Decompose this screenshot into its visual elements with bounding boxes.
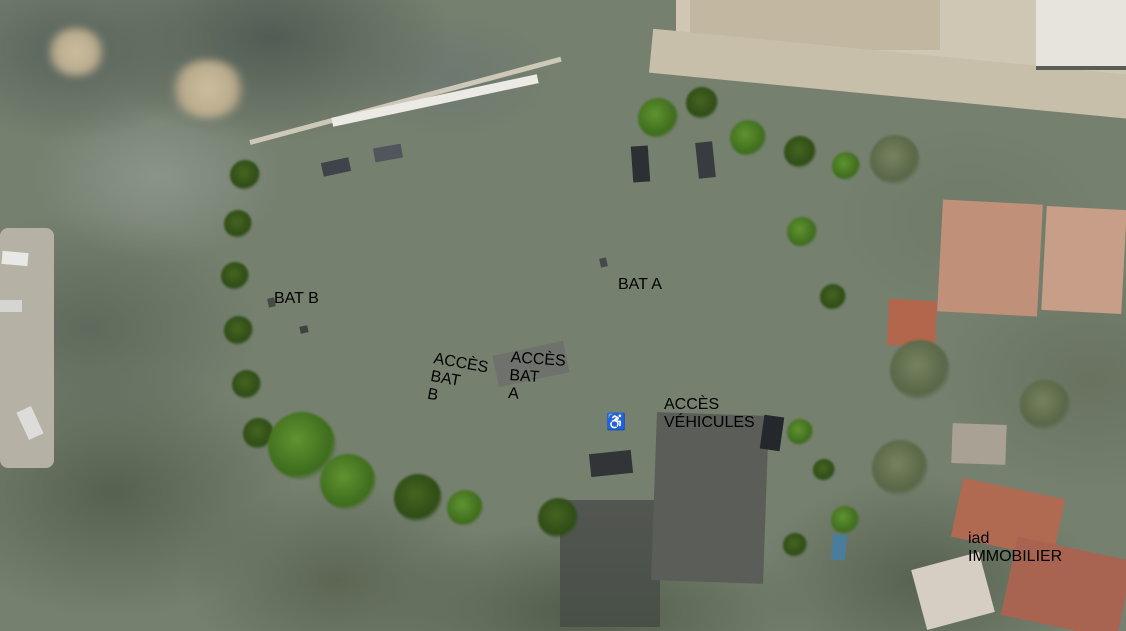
building-b-label: BAT B xyxy=(274,290,319,308)
hedge-tree xyxy=(221,262,249,290)
site-plan-canvas: ♿ ACCÈS BAT B ACCÈS BAT A ACCÈS VÉHI xyxy=(0,0,1126,631)
tree xyxy=(538,498,578,538)
tree xyxy=(870,135,920,185)
tree xyxy=(813,459,835,481)
frame-border xyxy=(0,627,1126,631)
brand-logo-text: iad xyxy=(968,530,1062,548)
flower-bush xyxy=(457,387,484,414)
car xyxy=(695,141,716,179)
car xyxy=(0,300,22,312)
sign-access-vehicles: ACCÈS VÉHICULES xyxy=(664,396,708,424)
tree xyxy=(730,120,766,156)
blossom-tree xyxy=(531,399,607,475)
sand-patch xyxy=(168,60,248,118)
neighbor-garage-roof xyxy=(951,423,1006,465)
tree xyxy=(783,533,807,557)
flower-bush xyxy=(482,406,502,426)
tree xyxy=(686,87,718,119)
flower-bush xyxy=(766,287,784,305)
flower-bush xyxy=(776,363,792,379)
tree xyxy=(872,440,928,496)
tree xyxy=(784,136,816,168)
disabled-parking-icon: ♿ xyxy=(606,412,626,432)
tree xyxy=(1020,380,1070,430)
car xyxy=(1,251,28,266)
tree xyxy=(787,419,813,445)
corner-building xyxy=(1036,0,1126,70)
tree xyxy=(820,284,846,310)
tree xyxy=(831,506,859,534)
sign-access-bat-a: ACCÈS BAT A xyxy=(507,349,539,415)
tree xyxy=(447,490,483,526)
tree xyxy=(832,152,860,180)
neighbor-house-roof xyxy=(937,199,1043,316)
tree xyxy=(638,98,678,138)
tree xyxy=(890,340,950,400)
frame-border xyxy=(1122,0,1126,631)
hedge-tree xyxy=(230,160,260,190)
flower-bush xyxy=(759,329,777,347)
blossom-tree xyxy=(692,460,756,524)
brand-logo-subtext: IMMOBILIER xyxy=(968,548,1062,566)
tree xyxy=(394,474,442,522)
tree xyxy=(787,217,817,247)
hedge-tree xyxy=(224,316,253,345)
car xyxy=(831,533,847,560)
blossom-tree xyxy=(591,107,643,159)
sand-patch xyxy=(45,28,107,76)
building-a-label: BAT A xyxy=(618,276,662,294)
hedge-tree xyxy=(224,210,252,238)
brand-logo: iad IMMOBILIER xyxy=(968,530,1062,566)
tree xyxy=(320,454,376,510)
neighbor-house-roof xyxy=(1041,206,1126,314)
hedge-tree xyxy=(232,370,261,399)
